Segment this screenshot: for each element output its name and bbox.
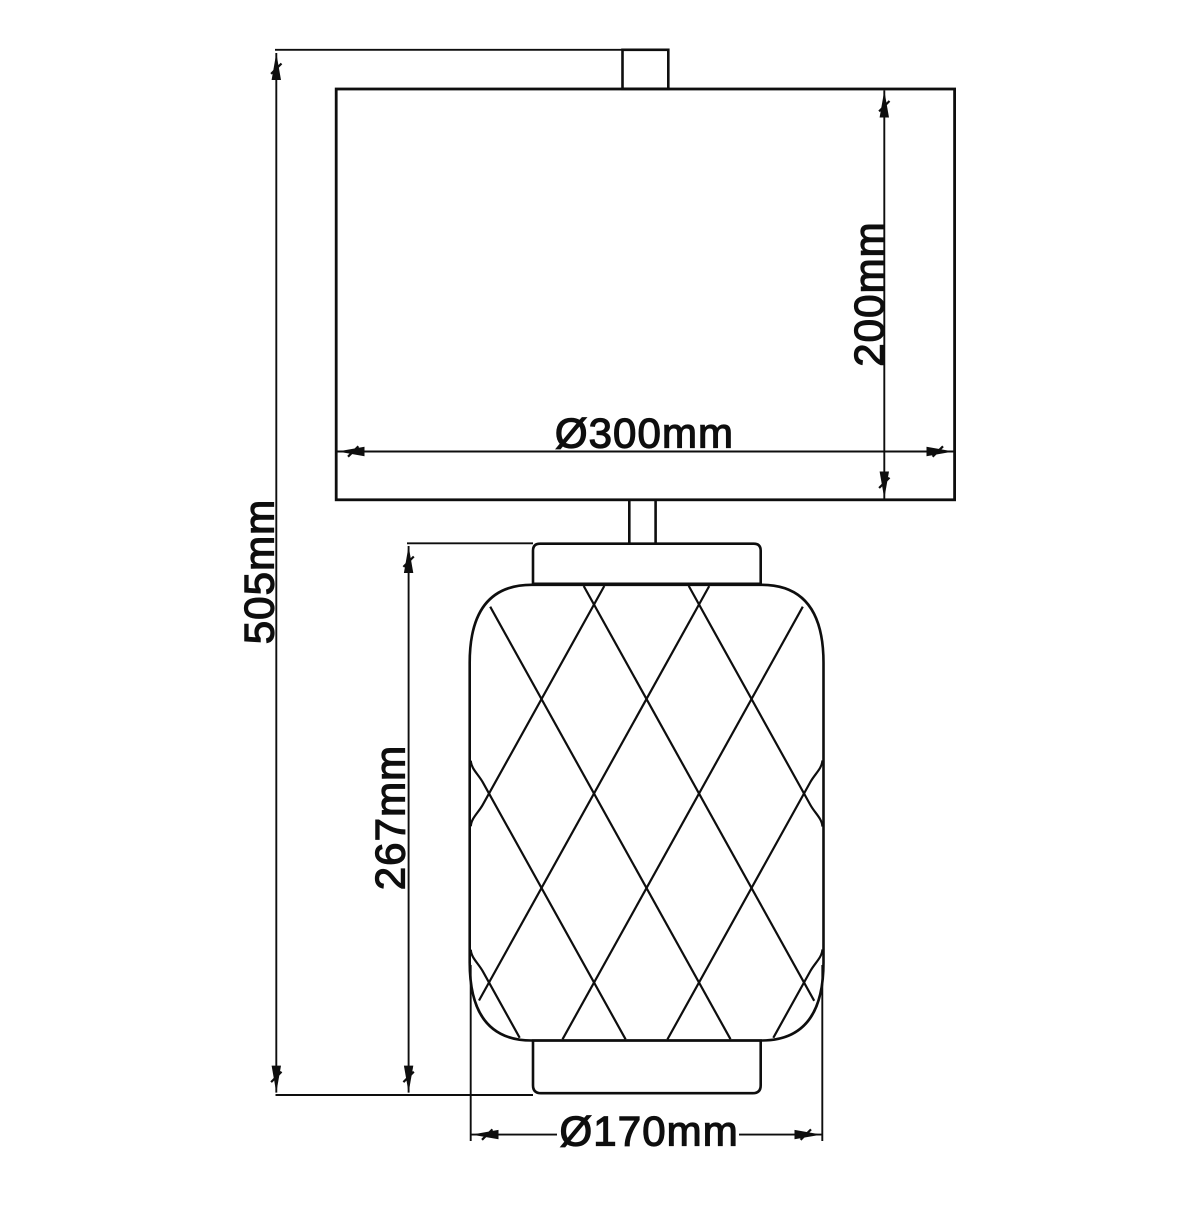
svg-text:Ø170mm: Ø170mm (560, 1108, 739, 1155)
svg-text:267mm: 267mm (367, 745, 414, 891)
svg-text:200mm: 200mm (846, 221, 893, 367)
svg-text:Ø300mm: Ø300mm (555, 409, 734, 456)
svg-text:505mm: 505mm (236, 499, 283, 645)
